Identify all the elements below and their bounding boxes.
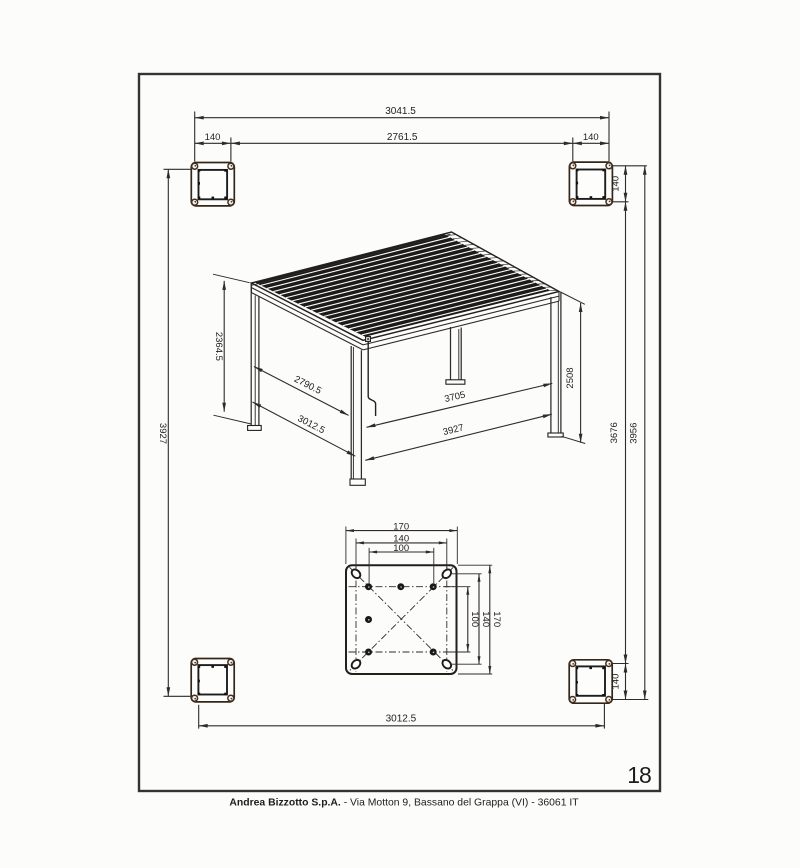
svg-text:3676: 3676 [609,422,620,443]
svg-text:2364.5: 2364.5 [213,332,224,361]
svg-text:140: 140 [610,176,621,192]
svg-text:140: 140 [583,132,599,143]
svg-text:170: 170 [393,521,409,532]
svg-text:3012.5: 3012.5 [386,713,417,724]
svg-text:140: 140 [205,132,221,143]
svg-text:100: 100 [393,543,409,554]
svg-text:3927: 3927 [157,423,168,444]
svg-text:2761.5: 2761.5 [387,132,418,143]
svg-text:100: 100 [469,611,480,627]
svg-text:18: 18 [627,762,651,788]
svg-text:3956: 3956 [629,423,640,444]
svg-text:2508: 2508 [565,367,576,388]
svg-text:170: 170 [491,611,502,627]
svg-text:140: 140 [610,674,621,690]
svg-text:3041.5: 3041.5 [385,106,416,117]
svg-text:Andrea Bizzotto S.p.A. - Via M: Andrea Bizzotto S.p.A. - Via Motton 9, B… [229,798,579,809]
